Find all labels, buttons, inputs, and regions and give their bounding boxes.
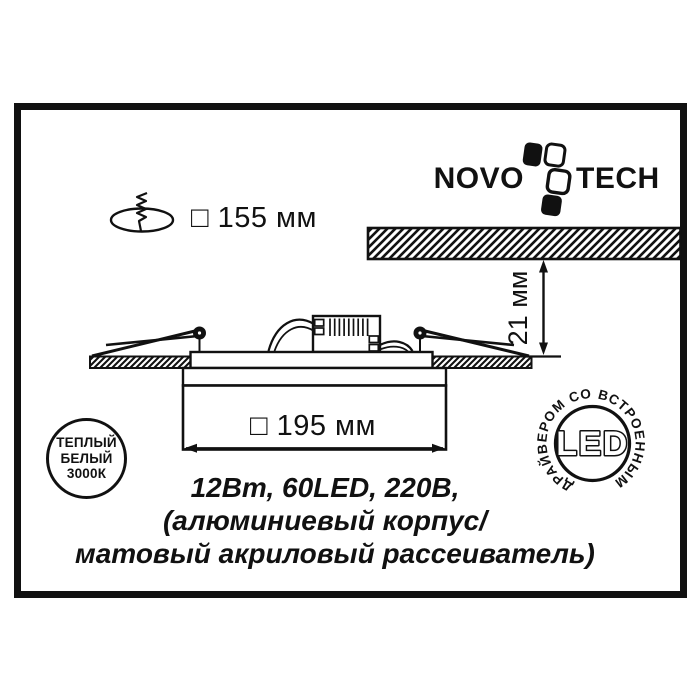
- trim-flange-right: [433, 357, 532, 369]
- ceiling-hatched-section: [368, 228, 681, 259]
- recess-depth-label: 21 мм: [502, 263, 534, 353]
- led-badge-center-text: LED: [556, 425, 629, 463]
- width-dimension-label: □ 195 мм: [250, 410, 376, 442]
- logo-wordmark-tech: TECH: [576, 164, 660, 194]
- product-specs-text: 12Вт, 60LED, 220В, (алюминиевый корпус/ …: [75, 471, 575, 570]
- specs-line-3: матовый акриловый рассеиватель): [75, 537, 575, 570]
- novotech-flower-icon: [516, 140, 574, 217]
- led-driver-box: [269, 316, 413, 352]
- warm-badge-line-2: БЕЛЫЙ: [60, 451, 112, 467]
- cutout-dimension-label: □ 155 мм: [191, 202, 317, 234]
- mounting-plate: [191, 352, 433, 368]
- warm-white-badge: ТЕПЛЫЙ БЕЛЫЙ 3000К: [46, 418, 127, 499]
- technical-drawing: LED ДРАЙВЕРОМ СО ВСТРОЕННЫМ: [0, 0, 700, 700]
- spring-clip-left: [92, 327, 206, 357]
- trim-flange-left: [90, 357, 191, 369]
- product-spec-diagram: { "colors": { "ink": "#111111", "paper":…: [0, 0, 700, 700]
- specs-line-1: 12Вт, 60LED, 220В,: [75, 471, 575, 504]
- warm-badge-line-3: 3000К: [67, 466, 106, 482]
- warm-badge-line-1: ТЕПЛЫЙ: [56, 435, 117, 451]
- screw-icon: [111, 193, 173, 232]
- heatsink-band: [183, 368, 446, 386]
- specs-line-2: (алюминиевый корпус/: [75, 504, 575, 537]
- logo-wordmark-novo: NOVO: [424, 164, 524, 194]
